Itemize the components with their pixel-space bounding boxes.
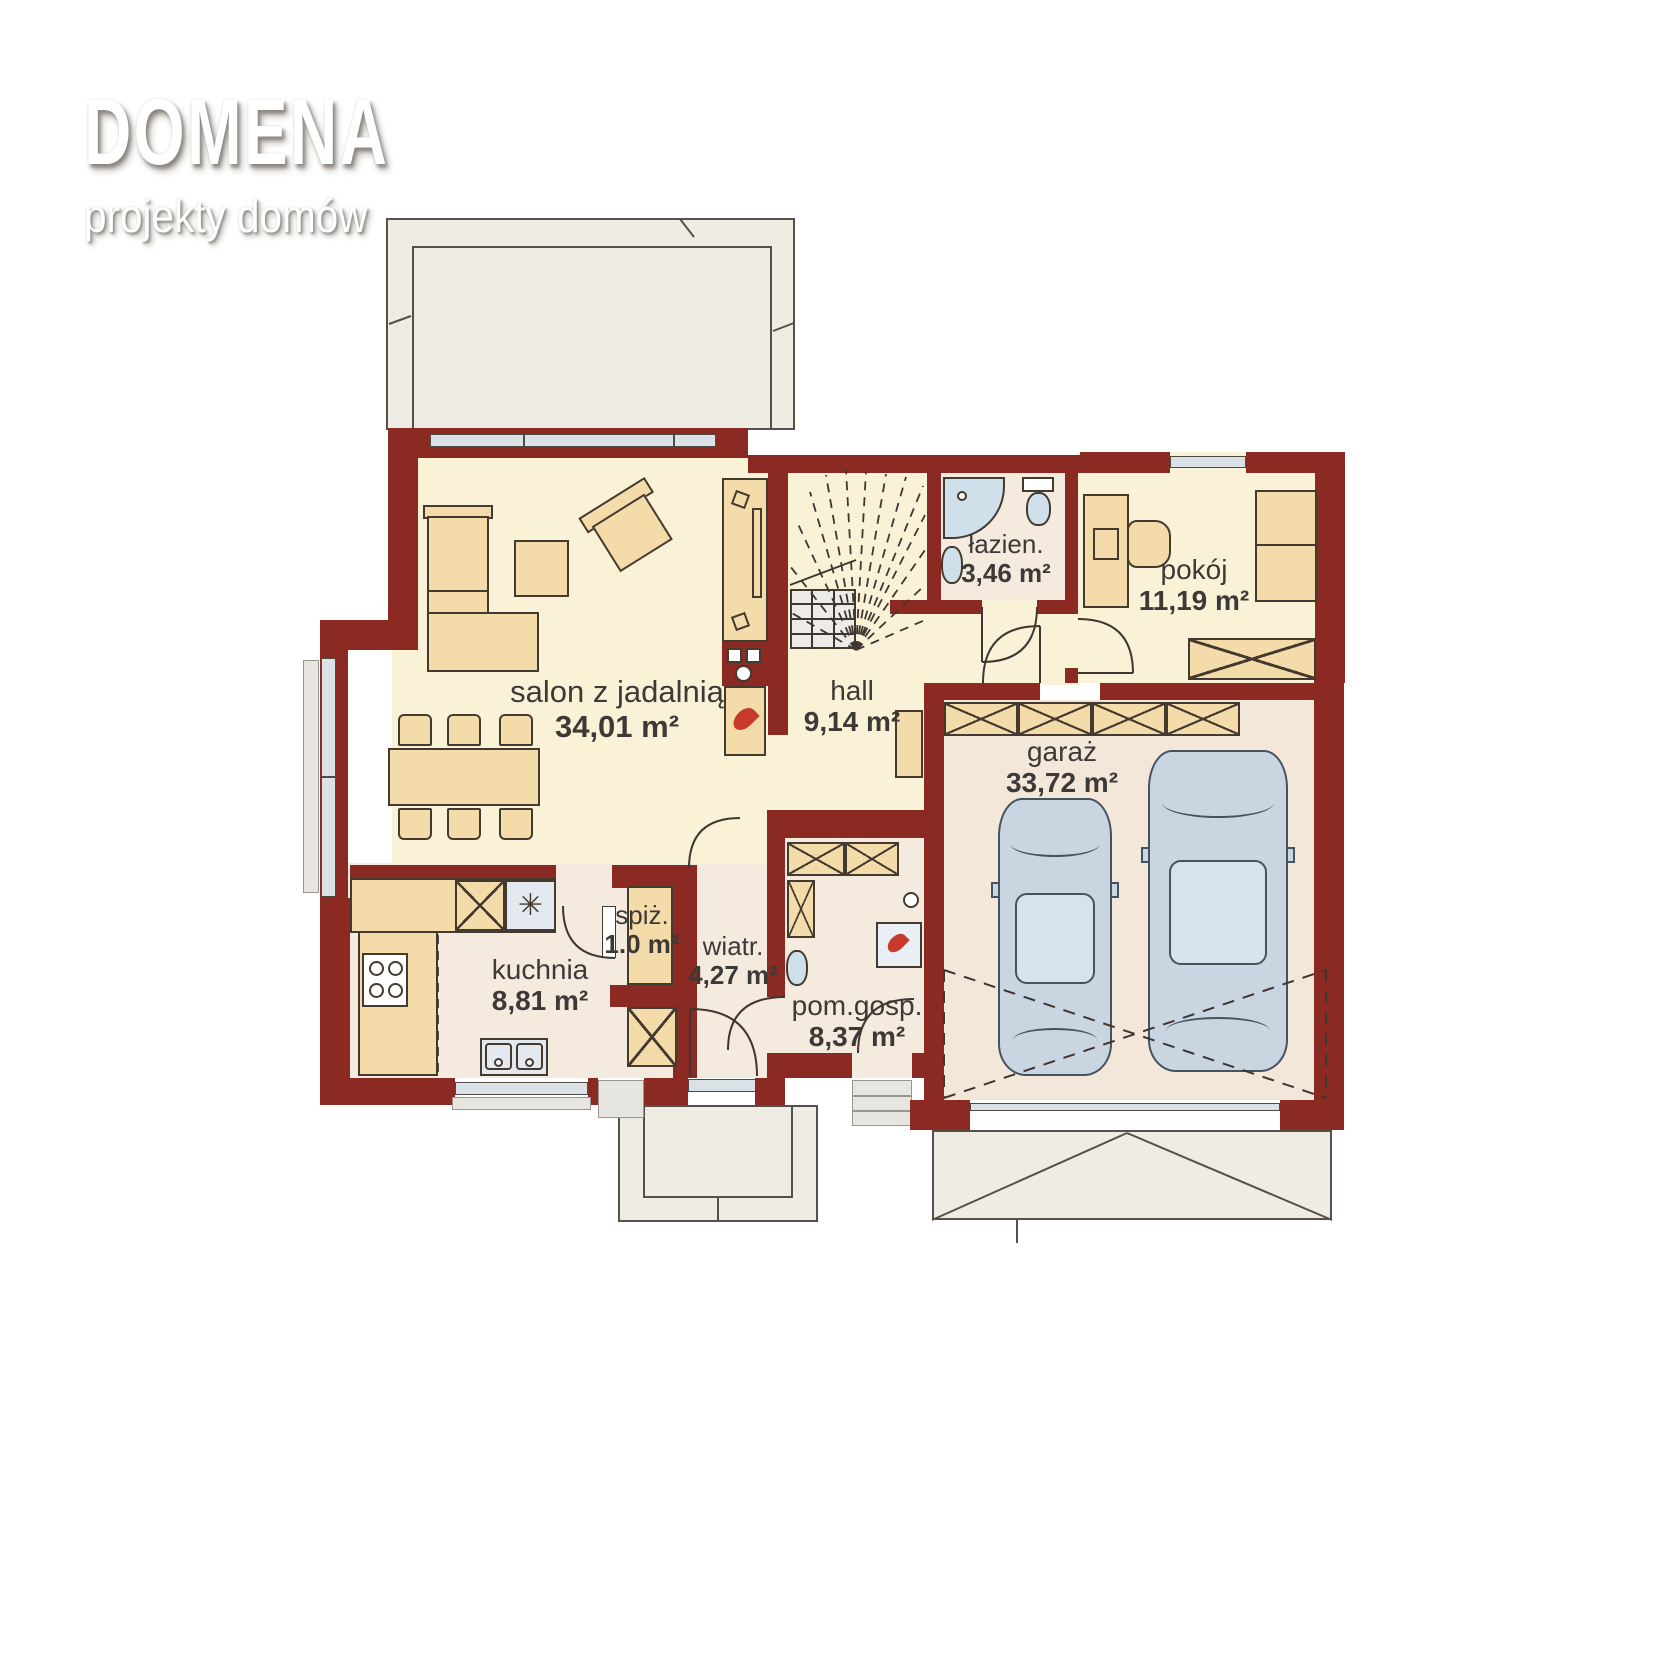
label-wiatrolap: wiatr. 4,27 m² [688, 932, 778, 990]
label-kuchnia: kuchnia 8,81 m² [492, 954, 589, 1017]
room-area: 8,37 m² [792, 1021, 923, 1052]
room-name: spiż. [604, 901, 679, 930]
label-garaz: garaż 33,72 m² [1006, 736, 1118, 799]
pokoj-door-arc [1078, 619, 1133, 673]
room-area: 11,19 m² [1139, 585, 1250, 616]
room-area: 1.0 m² [604, 930, 679, 959]
label-lazienka: łazien. 3,46 m² [961, 530, 1051, 588]
room-name: wiatr. [688, 932, 778, 961]
room-area: 9,14 m² [804, 706, 901, 737]
terrace-tick-right [773, 323, 794, 331]
stairs-lines [790, 470, 925, 650]
room-name: kuchnia [492, 954, 589, 985]
label-spizarnia: spiż. 1.0 m² [604, 901, 679, 959]
room-name: pom.gosp. [792, 990, 923, 1021]
stairs-winder-dashes [790, 470, 925, 650]
line-overlay [0, 0, 1680, 1680]
room-area: 3,46 m² [961, 559, 1051, 588]
brand-subtitle: projekty domów [84, 189, 428, 243]
bathroom-door-arc [982, 607, 1037, 662]
stairs-tread-lines [790, 560, 856, 649]
canopy-hip-lines [932, 1133, 1332, 1243]
wiatr-hall-door-arc [689, 818, 740, 868]
entry-door-arc [690, 1009, 757, 1076]
terrace-tick-left [389, 316, 411, 324]
room-name: hall [804, 675, 901, 706]
room-area: 8,81 m² [492, 985, 589, 1016]
terrace-tick-top [680, 219, 694, 237]
floor-plan-canvas: DOMENA projekty domów [0, 0, 1680, 1680]
label-pokoj: pokój 11,19 m² [1139, 554, 1250, 617]
room-area: 34,01 m² [510, 710, 724, 745]
room-name: salon z jadalnią [510, 675, 724, 710]
garage-door-swing-dashes [944, 970, 1326, 1098]
label-hall: hall 9,14 m² [804, 675, 901, 738]
brand-title: DOMENA [84, 78, 389, 187]
label-salon: salon z jadalnią 34,01 m² [510, 675, 724, 744]
brand-logo: DOMENA projekty domów [84, 78, 475, 243]
garage-dashes [944, 970, 1326, 1098]
room-area: 33,72 m² [1006, 767, 1118, 798]
room-area: 4,27 m² [688, 961, 778, 990]
room-name: pokój [1139, 554, 1250, 585]
room-name: garaż [1006, 736, 1118, 767]
room-name: łazien. [961, 530, 1051, 559]
label-pomgosp: pom.gosp. 8,37 m² [792, 990, 923, 1053]
